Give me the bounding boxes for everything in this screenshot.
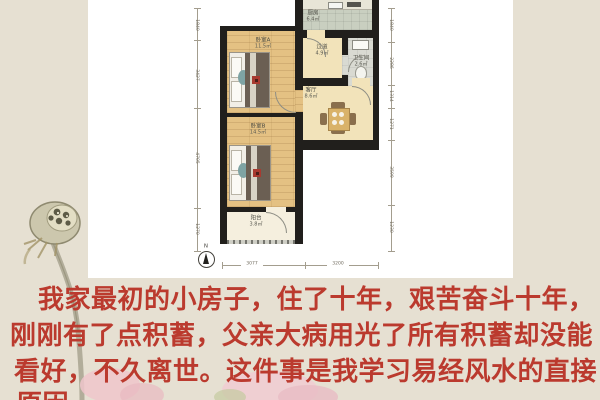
- door-gap: [307, 30, 325, 38]
- dim-value: 3200: [327, 261, 349, 266]
- bathroom-sink-icon: [352, 40, 369, 50]
- dim-value: 3427: [195, 67, 200, 84]
- page: 厨房 6.4㎡ 卧室A 11.5㎡ 过道 4.9㎡ 卫: [0, 0, 600, 400]
- dining-table-icon: [320, 102, 356, 134]
- dim-value: 1840: [195, 17, 200, 34]
- balcony-railing-icon: [227, 240, 295, 244]
- caption-line-4: 原因: [16, 392, 69, 400]
- caption-line-3: 看好，不久离世。这件事是我学习易经风水的直接: [14, 359, 597, 385]
- room-label-kitchen: 厨房 6.4㎡: [291, 10, 336, 23]
- room-label-bedroom-b: 卧室B 14.5㎡: [236, 123, 281, 136]
- door-gap: [352, 78, 370, 86]
- room-area: 6.4㎡: [291, 16, 336, 22]
- door-gap: [342, 55, 348, 75]
- room-area: 11.5㎡: [241, 43, 286, 49]
- dim-value: 1314: [389, 88, 394, 105]
- dim-value: 1230: [389, 219, 394, 236]
- dim-value: 1270: [195, 221, 200, 238]
- caption-line-1: 我家最初的小房子，住了十年，艰苦奋斗十年，: [38, 287, 595, 313]
- kitchen-stove-icon: [347, 2, 361, 7]
- bed-icon: [229, 145, 271, 201]
- room-label-bedroom-a: 卧室A 11.5㎡: [241, 37, 286, 50]
- bed-icon: [229, 52, 270, 108]
- dim-value: 3599: [389, 164, 394, 181]
- door-gap: [295, 90, 303, 112]
- dim-value: 3077: [241, 261, 263, 266]
- dim-value: 4705: [195, 150, 200, 167]
- north-arrow-icon: N: [195, 243, 217, 273]
- dim-value: 1840: [389, 17, 394, 34]
- caption-line-2: 刚刚有了点积蓄，父亲大病用光了所有积蓄却没能: [10, 323, 593, 349]
- north-label: N: [200, 243, 212, 249]
- dim-value: 1271: [389, 116, 394, 133]
- kitchen-sink-icon: [328, 2, 343, 9]
- dim-value: 2286: [389, 55, 394, 72]
- room-area: 14.5㎡: [236, 129, 281, 135]
